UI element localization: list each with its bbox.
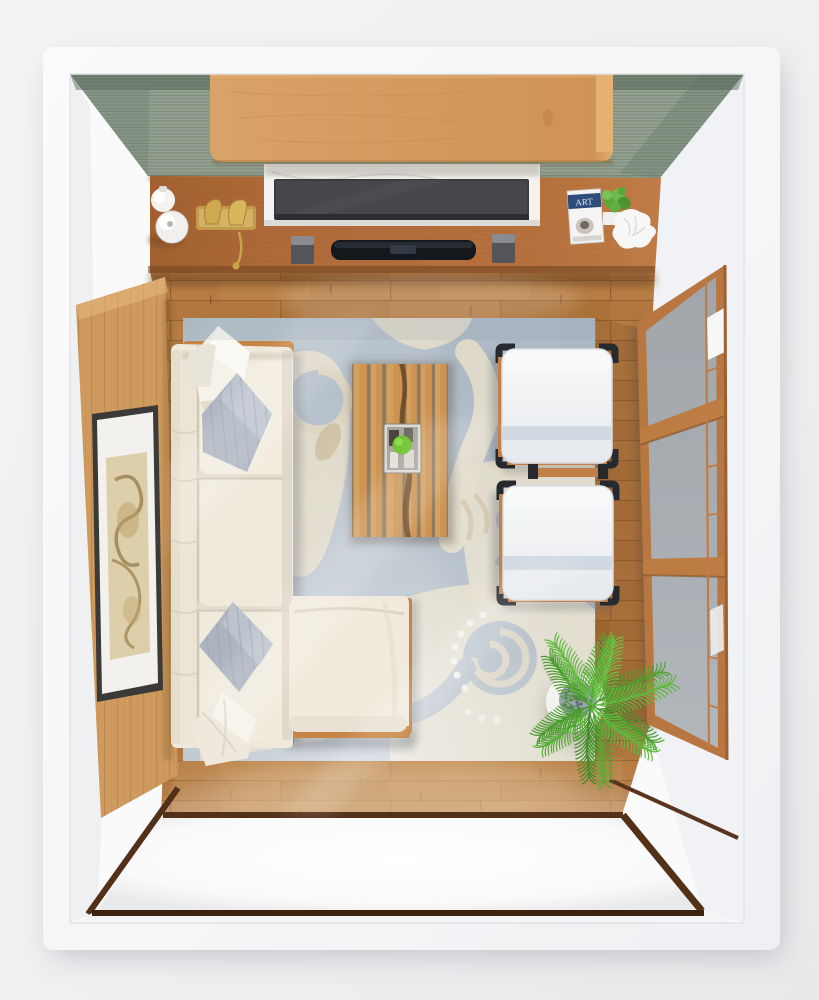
svg-text:ART: ART bbox=[575, 196, 594, 207]
